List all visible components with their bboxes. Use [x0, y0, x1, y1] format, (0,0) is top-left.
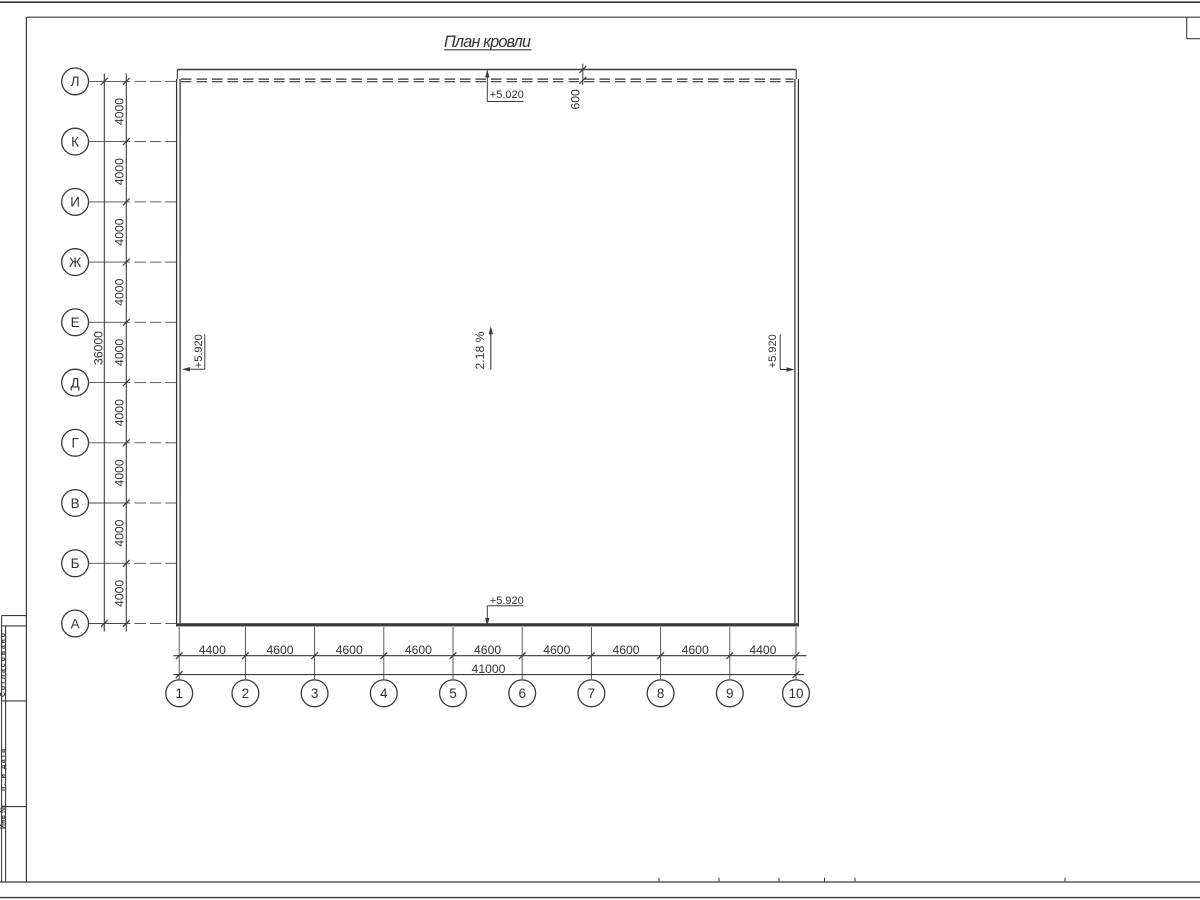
svg-text:4400: 4400 [749, 643, 776, 657]
svg-text:Инв №: Инв № [0, 805, 7, 829]
svg-text:4000: 4000 [112, 580, 126, 607]
svg-text:Л: Л [71, 74, 80, 89]
svg-text:4600: 4600 [405, 643, 432, 657]
svg-text:Согласовано: Согласовано [0, 633, 7, 697]
svg-text:4600: 4600 [612, 643, 639, 657]
svg-text:36000: 36000 [91, 331, 105, 365]
svg-text:8: 8 [657, 686, 665, 701]
svg-text:И: И [70, 195, 80, 210]
svg-text:Д: Д [71, 375, 80, 390]
svg-text:4000: 4000 [112, 218, 126, 245]
svg-text:9: 9 [726, 686, 734, 701]
svg-text:4000: 4000 [112, 158, 126, 185]
svg-text:4000: 4000 [112, 98, 126, 125]
svg-text:К: К [71, 134, 79, 149]
svg-text:7: 7 [588, 686, 596, 701]
svg-text:4600: 4600 [682, 643, 709, 657]
svg-text:4000: 4000 [112, 519, 126, 546]
svg-text:Г: Г [71, 436, 79, 451]
svg-text:В: В [71, 496, 80, 511]
svg-text:2: 2 [242, 686, 250, 701]
svg-text:600: 600 [569, 89, 583, 110]
svg-text:4600: 4600 [336, 643, 363, 657]
svg-text:Е: Е [71, 315, 80, 330]
svg-text:+5.920: +5.920 [767, 334, 779, 368]
svg-text:6: 6 [518, 686, 526, 701]
svg-text:4600: 4600 [474, 643, 501, 657]
svg-text:+5.920: +5.920 [490, 595, 524, 607]
svg-text:4000: 4000 [112, 339, 126, 366]
svg-text:4600: 4600 [543, 643, 570, 657]
svg-text:3: 3 [311, 686, 319, 701]
svg-text:4400: 4400 [199, 643, 226, 657]
svg-text:4000: 4000 [112, 459, 126, 486]
svg-text:План кровли: План кровли [444, 33, 531, 51]
svg-text:4000: 4000 [112, 278, 126, 305]
svg-text:п. и дата: п. и дата [0, 749, 7, 791]
svg-text:2.18 %: 2.18 % [473, 331, 487, 369]
svg-text:+5.020: +5.020 [490, 89, 524, 101]
svg-text:+5.920: +5.920 [193, 334, 205, 368]
svg-text:5: 5 [449, 686, 457, 701]
svg-text:1: 1 [175, 686, 183, 701]
svg-text:10: 10 [788, 686, 803, 701]
svg-text:Ж: Ж [69, 255, 82, 270]
svg-text:4000: 4000 [112, 399, 126, 426]
svg-text:Б: Б [71, 556, 80, 571]
svg-text:А: А [71, 616, 80, 631]
svg-text:41000: 41000 [472, 662, 506, 676]
svg-text:4: 4 [380, 686, 388, 701]
svg-text:4600: 4600 [266, 643, 293, 657]
